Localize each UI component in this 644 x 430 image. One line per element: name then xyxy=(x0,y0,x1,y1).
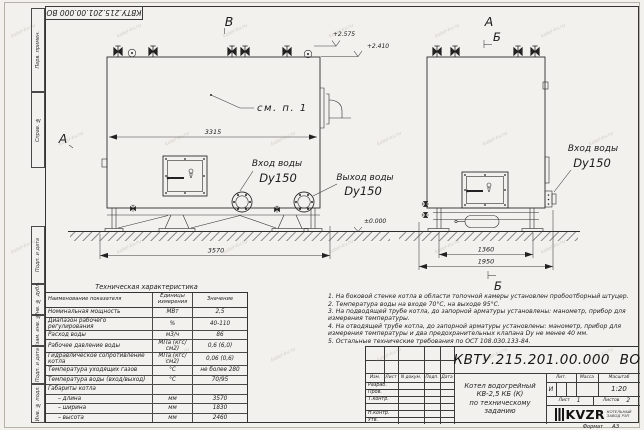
view-label-A-top: А xyxy=(484,14,494,29)
spec-cell: мм xyxy=(153,404,193,413)
elev-0000-text: ±0.000 xyxy=(364,218,386,225)
spec-table: Техническая характеристика Наименование … xyxy=(45,283,248,423)
boiler-body-side xyxy=(427,57,545,208)
note-line: 2. Температура воды на входе 70°С, на вы… xyxy=(328,301,636,308)
spec-row: Рабочее давление водыМПа (кгс/см2)0,6 (6… xyxy=(46,340,247,353)
spec-cell xyxy=(153,385,193,394)
spec-cell: °С xyxy=(153,376,193,385)
title-line-2: КВ-2,5 КБ (К) xyxy=(477,390,524,398)
elevation-2575: +2.575 xyxy=(314,31,355,46)
sheets-value: 2 xyxy=(626,398,630,404)
spec-table-header: Наименование показателяЕдиницы измерения… xyxy=(46,293,247,308)
note-line: 5. Остальные технические требования по О… xyxy=(328,338,636,345)
spec-cell: МПа (кгс/см2) xyxy=(153,340,193,352)
title-line-1: Котел водогрейный xyxy=(464,382,535,390)
view-labels: В А А Б Б xyxy=(58,14,502,293)
spec-table-title: Техническая характеристика xyxy=(45,283,248,292)
logo-text: KVZR xyxy=(566,407,605,422)
section-label-B-top: Б xyxy=(493,30,501,44)
spec-row: Номинальная мощностьМВт2,5 xyxy=(46,308,247,318)
elev-2410-text: +2.410 xyxy=(367,43,389,50)
inlet-front-dy: Dy150 xyxy=(259,171,297,185)
revision-col-header: N докум. xyxy=(398,373,424,382)
door-keyhole xyxy=(487,183,491,192)
sheet-label: Лист xyxy=(559,398,570,403)
spec-cell: не более 280 xyxy=(193,366,247,375)
sheets-label: Листов xyxy=(603,398,619,403)
title-line-3: по техническому заданию xyxy=(456,399,544,416)
spec-cell: 2,5 xyxy=(193,308,247,317)
inlet-label-side: Вход воды Dy150 xyxy=(554,144,618,192)
spec-row: Температура воды (вход/выход)°С70/95 xyxy=(46,376,247,386)
section-label-B-bottom: Б xyxy=(494,279,502,293)
sheet-value: 1 xyxy=(577,398,581,404)
ground-hatch xyxy=(70,232,390,241)
spec-cell: 86 xyxy=(193,331,247,340)
spec-row: Гидравлическое сопротивление котлаМПа (к… xyxy=(46,353,247,366)
lit-header: Лит. xyxy=(546,373,576,382)
ground-hatch xyxy=(399,232,578,241)
spec-row: Расход водым3/ч86 xyxy=(46,331,247,341)
spec-cell: 3570 xyxy=(193,395,247,404)
spec-cell: Гидравлическое сопротивление котла xyxy=(46,353,153,365)
lit-value: И xyxy=(546,382,556,396)
spec-cell: % xyxy=(153,318,193,330)
note-line: 1. На боковой стенке котла в области топ… xyxy=(328,293,636,300)
outlet-front-text: Выход воды xyxy=(336,173,393,183)
revision-col-header: Лист xyxy=(384,373,398,382)
spec-cell: Габариты котла xyxy=(46,385,153,394)
dim-3315-text: 3315 xyxy=(205,128,222,136)
ground-line xyxy=(68,232,580,242)
spec-cell: м3/ч xyxy=(153,331,193,340)
spec-cell: МВт xyxy=(153,308,193,317)
signature-row-label: Т.контр. xyxy=(366,396,398,403)
company-logo: KVZR КОТЕЛЬНЫЙ ЗАВОД РЭП xyxy=(547,405,639,423)
inlet-flange-front xyxy=(232,192,252,212)
spec-header-cell: Наименование показателя xyxy=(46,293,153,307)
elevation-2410: +2.410 xyxy=(321,43,389,57)
side-door xyxy=(462,172,508,208)
note-line: 3. На подводящей трубе котла, до запорно… xyxy=(328,308,636,322)
inlet-label-front: Вход воды Dy150 xyxy=(240,159,302,191)
spec-cell: 0,06 (0,6) xyxy=(193,353,247,365)
spec-cell: МПа (кгс/см2) xyxy=(153,353,193,365)
side-bracket xyxy=(545,157,549,183)
sheet-number-cell: Лист 1 xyxy=(546,396,593,405)
callout-text: см. п. 1 xyxy=(257,103,308,114)
spec-cell: – ширина xyxy=(46,404,153,413)
side-tap xyxy=(422,212,429,217)
spec-row: – длинамм3570 xyxy=(46,395,247,405)
door-bolts xyxy=(165,158,205,194)
spec-cell: 70/95 xyxy=(193,376,247,385)
title-block: КВТУ.215.201.00.000 ВО Изм.ЛистN докум.П… xyxy=(365,346,639,423)
elevation-0000: ±0.000 xyxy=(354,218,386,232)
top-valves-side xyxy=(433,46,539,57)
format-value: А3 xyxy=(612,424,619,430)
spec-table-grid: Наименование показателяЕдиницы измерения… xyxy=(45,292,248,423)
elev-2575-text: +2.575 xyxy=(333,31,355,38)
spec-row: Габариты котла xyxy=(46,385,247,395)
front-door xyxy=(163,156,207,196)
spec-cell: Рабочее давление воды xyxy=(46,340,153,352)
revision-col-header: Изм. xyxy=(366,373,384,382)
note-line: 4. На отводящей трубе котла, до запорной… xyxy=(328,323,636,337)
door-keyhole xyxy=(189,169,193,178)
spec-header-cell: Единицы измерения xyxy=(153,293,193,307)
signature-row-label: Разраб. xyxy=(366,382,398,389)
document-number: КВТУ.215.201.00.000 ВО xyxy=(454,347,640,373)
spec-cell: – длина xyxy=(46,395,153,404)
format-strip: Формат А3 xyxy=(563,423,639,430)
scale-header: Масштаб xyxy=(598,373,640,382)
spec-table-rows: Номинальная мощностьМВт2,5Диапазон рабоч… xyxy=(46,308,247,422)
spec-cell: Температура уходящих газов xyxy=(46,366,153,375)
scale-value: 1:20 xyxy=(598,382,640,396)
revision-col-header: Подп. xyxy=(424,373,440,382)
dim-1360-text: 1360 xyxy=(478,246,495,254)
logo-bars-icon xyxy=(555,408,564,421)
drain-valve xyxy=(130,205,135,212)
drawing-sheet: Перв. примен.Справ. №Подп. и датаИнв. № … xyxy=(0,0,644,430)
dimension-3570: 3570 xyxy=(100,226,330,259)
dim-3570-text: 3570 xyxy=(208,247,225,255)
spec-cell: °С xyxy=(153,366,193,375)
front-view: 3315 3570 см. п. 1 Вход воды Dy150 xyxy=(100,31,394,259)
drawing-title: Котел водогрейный КВ-2,5 КБ (К) по техни… xyxy=(456,374,544,423)
signature-row-label: Н.контр. xyxy=(366,410,398,417)
view-label-A-left: А xyxy=(58,131,68,146)
side-fitting xyxy=(102,159,107,167)
outlet-label-front: Выход воды Dy150 xyxy=(313,173,394,198)
spec-cell: – высота xyxy=(46,414,153,423)
spec-row: – высотамм2460 xyxy=(46,414,247,423)
spec-row: Температура уходящих газов°Сне более 280 xyxy=(46,366,247,376)
side-tap xyxy=(422,201,429,206)
signature-row-label xyxy=(366,403,398,410)
inlet-side-dy: Dy150 xyxy=(573,156,611,170)
spec-cell xyxy=(193,385,247,394)
spec-cell: мм xyxy=(153,414,193,423)
signature-row-label: Пров. xyxy=(366,389,398,396)
signature-row-label: Утв. xyxy=(366,417,398,424)
flue-outlet-detail xyxy=(320,88,351,128)
spec-cell: 0,6 (6,0) xyxy=(193,340,247,352)
inlet-side-text: Вход воды xyxy=(568,144,618,154)
company-line-2: ЗАВОД РЭП xyxy=(607,414,632,418)
spec-row: Диапазон рабочего регулирования%40-110 xyxy=(46,318,247,331)
spec-cell: мм xyxy=(153,395,193,404)
drain-valve xyxy=(274,206,279,213)
side-stub xyxy=(543,82,548,89)
inlet-front-text: Вход воды xyxy=(252,159,302,169)
spec-cell: Температура воды (вход/выход) xyxy=(46,376,153,385)
revision-col-header: Дата xyxy=(440,373,454,382)
spec-cell: Расход воды xyxy=(46,331,153,340)
outlet-front-dy: Dy150 xyxy=(344,184,382,198)
spec-cell: Диапазон рабочего регулирования xyxy=(46,318,153,330)
spec-cell: 40-110 xyxy=(193,318,247,330)
side-supports xyxy=(428,208,543,231)
spec-cell: Номинальная мощность xyxy=(46,308,153,317)
spec-row: – ширинамм1830 xyxy=(46,404,247,414)
spec-cell: 2460 xyxy=(193,414,247,423)
format-label: Формат xyxy=(583,424,603,430)
view-label-B: В xyxy=(225,14,234,29)
technical-notes: 1. На боковой стенке котла в области топ… xyxy=(328,293,636,345)
sheets-total-cell: Листов 2 xyxy=(593,396,640,405)
front-supports xyxy=(105,208,322,231)
company-name: КОТЕЛЬНЫЙ ЗАВОД РЭП xyxy=(607,410,632,419)
top-valves-front xyxy=(114,46,291,57)
inlet-nozzle-side xyxy=(545,191,556,207)
dimension-3315: 3315 xyxy=(109,128,317,137)
burner-unit xyxy=(455,216,499,228)
spec-cell: 1830 xyxy=(193,404,247,413)
spec-header-cell: Значение xyxy=(193,293,247,307)
dim-1950-text: 1950 xyxy=(478,258,495,266)
callout-see-note-1: см. п. 1 xyxy=(210,94,308,114)
mass-header: Масса xyxy=(576,373,598,382)
